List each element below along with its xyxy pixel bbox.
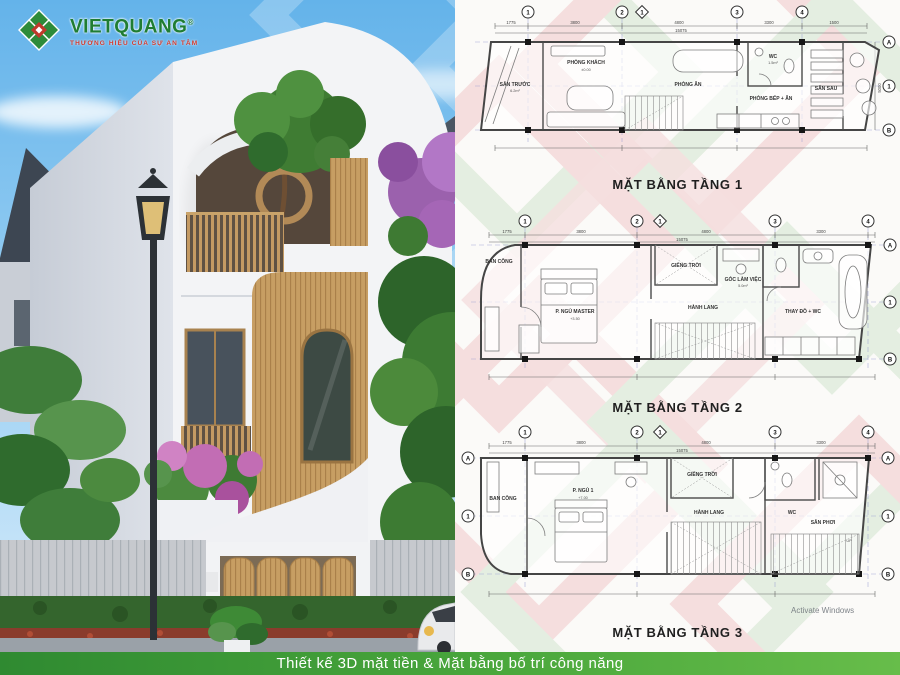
floorplan-level-2: 1775 3800 4800 3300 15075 1 2 1 3 4 A 1 … xyxy=(455,211,900,397)
room-label: HÀNH LANG xyxy=(688,304,718,311)
svg-text:A: A xyxy=(888,243,893,249)
dim-total: 15075 xyxy=(676,237,688,242)
floorplan-level-3: 1775 3800 4800 3300 15075 1 2 1 3 4 A 1 … xyxy=(455,422,900,616)
render-scene xyxy=(0,0,455,652)
room-area: 5.0m² xyxy=(738,284,748,288)
brand-diamond-icon xyxy=(14,9,64,55)
room-label: WC xyxy=(769,54,778,60)
room-label: P. NGỦ 1 xyxy=(573,487,594,494)
floorplans-panel: 1775 3800 4800 3300 1500 15075 5000 1 2 … xyxy=(455,0,900,652)
caption-text: Thiết kế 3D mặt tiền & Mặt bằng bố trí c… xyxy=(277,655,624,672)
room-label: SÂN SAU xyxy=(815,85,838,92)
room-label: HÀNH LANG xyxy=(694,509,724,516)
svg-text:B: B xyxy=(466,572,471,578)
dim-segment: 3300 xyxy=(816,440,826,445)
stairs xyxy=(655,323,755,359)
room-label: GÓC LÀM VIỆC xyxy=(725,275,762,283)
plan-title-level-1: MẶT BẰNG TẦNG 1 xyxy=(455,177,900,192)
plan-title-level-3: MẶT BẰNG TẦNG 3 xyxy=(455,625,900,640)
room-label: THAY ĐỒ + WC xyxy=(785,308,821,315)
dim-side: 5000 xyxy=(877,83,882,93)
svg-text:B: B xyxy=(887,128,892,134)
dim-total: 15075 xyxy=(675,28,687,33)
dim-segment: 3800 xyxy=(570,20,580,25)
activate-windows-watermark: Activate Windows xyxy=(791,606,854,615)
room-label: PHÒNG ĂN xyxy=(675,80,702,88)
room-label: GIẾNG TRỜI xyxy=(687,470,717,478)
room-label: WC xyxy=(788,510,797,516)
dim-segment: 1775 xyxy=(506,20,516,25)
registered-mark: ® xyxy=(187,18,193,27)
room-label: PHÒNG KHÁCH xyxy=(567,58,605,66)
fence-right xyxy=(370,540,455,602)
dim-segment: 3300 xyxy=(764,20,774,25)
room-label: SÂN TRƯỚC xyxy=(500,80,531,88)
svg-text:A: A xyxy=(886,456,891,462)
dim-segment: 1775 xyxy=(502,440,512,445)
room-label: BAN CÔNG xyxy=(485,257,512,265)
level-mark: +3.50 xyxy=(570,317,580,321)
caption-bar: Thiết kế 3D mặt tiền & Mặt bằng bố trí c… xyxy=(0,652,900,675)
poster: 1775 3800 4800 3300 1500 15075 5000 1 2 … xyxy=(0,0,900,675)
room-label: SÂN PHƠI xyxy=(811,519,836,526)
dim-segment: 3800 xyxy=(576,440,586,445)
room-area: 1.5m² xyxy=(768,61,778,65)
brand-name: VIETQUANG® xyxy=(70,13,198,37)
svg-text:B: B xyxy=(888,357,893,363)
gate-sign xyxy=(206,572,218,592)
dim-segment: 1775 xyxy=(502,229,512,234)
balcony-top-railing xyxy=(186,214,284,272)
plan-title-level-2: MẶT BẰNG TẦNG 2 xyxy=(455,400,900,415)
room-label: GIẾNG TRỜI xyxy=(671,261,701,269)
brand-tagline: THƯƠNG HIỆU CỦA SỰ AN TÂM xyxy=(70,40,198,47)
fence-left xyxy=(0,540,206,604)
floorplan-level-1: 1775 3800 4800 3300 1500 15075 5000 1 2 … xyxy=(455,2,900,174)
dim-segment: 4800 xyxy=(701,440,711,445)
svg-text:A: A xyxy=(466,456,471,462)
stairs xyxy=(625,96,683,130)
dim-segment: 1500 xyxy=(829,20,839,25)
dim-segment: 3800 xyxy=(576,229,586,234)
room-area: 6.2m² xyxy=(510,89,520,93)
room-label: PHÒNG BẾP + ĂN xyxy=(750,94,793,102)
room-label: BAN CÔNG xyxy=(489,494,516,502)
wood-panel-top xyxy=(330,158,368,246)
dim-segment: 3300 xyxy=(816,229,826,234)
svg-text:B: B xyxy=(886,572,891,578)
dim-total: 15075 xyxy=(676,448,688,453)
dim-segment: 4800 xyxy=(701,229,711,234)
dim-segment: 4800 xyxy=(674,20,684,25)
svg-text:A: A xyxy=(887,40,892,46)
level-mark: ±0.00 xyxy=(581,68,590,72)
room-label: P. NGỦ MASTER xyxy=(555,308,594,315)
stairs-up-label: UP xyxy=(846,539,852,543)
brand-logo: VIETQUANG® THƯƠNG HIỆU CỦA SỰ AN TÂM xyxy=(14,9,198,55)
house-render xyxy=(0,0,455,652)
level-mark: +7.00 xyxy=(578,496,588,500)
